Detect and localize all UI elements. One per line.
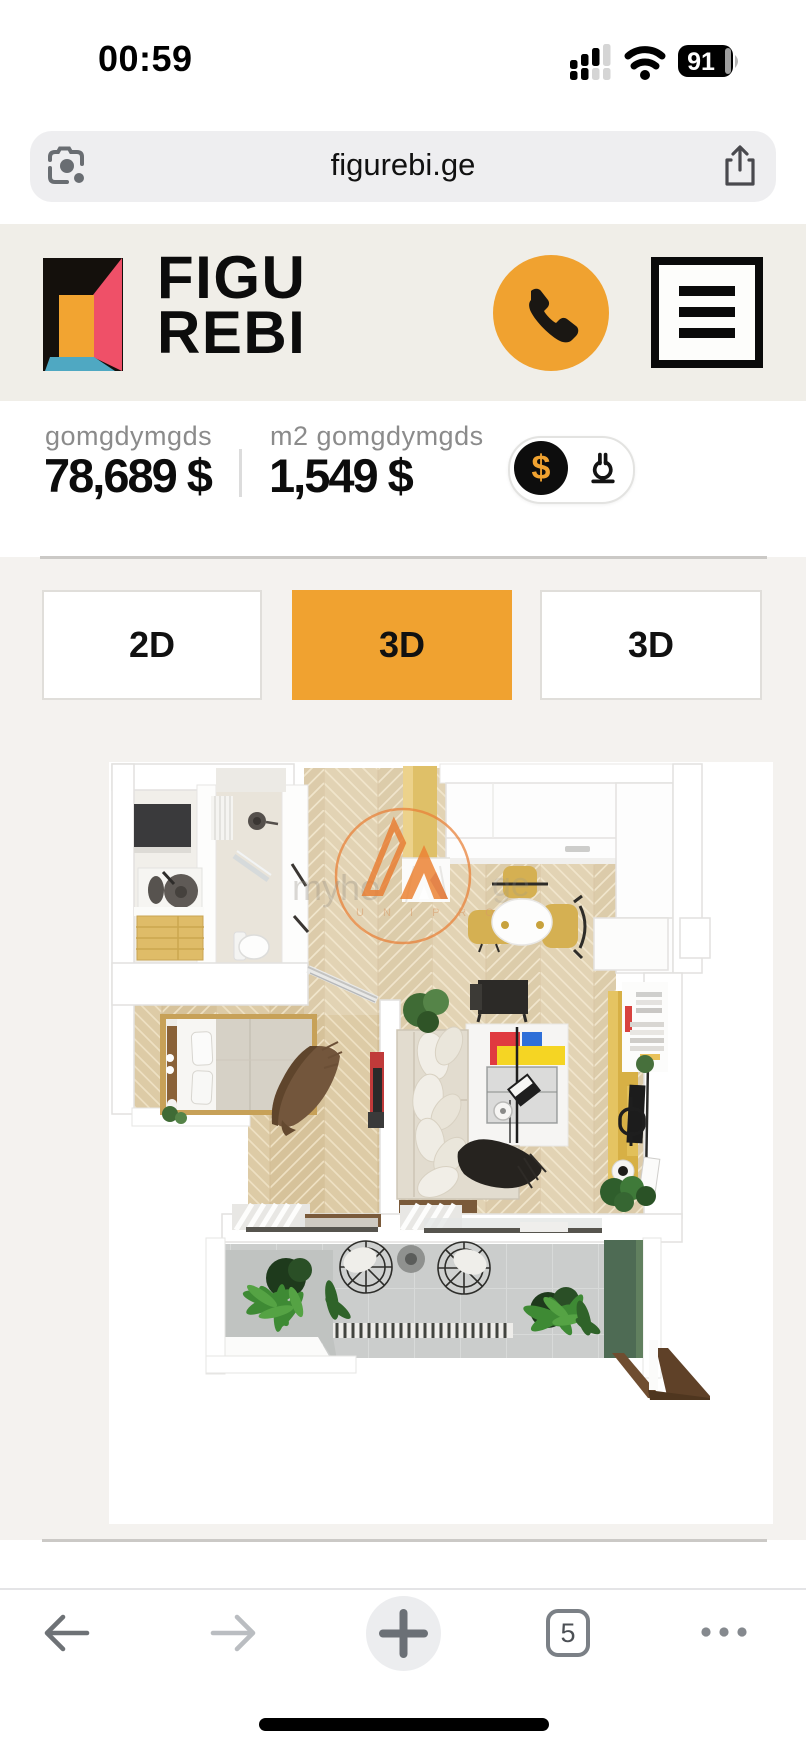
svg-text:U N I P R O: U N I P R O <box>356 907 502 919</box>
svg-text:91: 91 <box>687 48 715 76</box>
svg-text:ge: ge <box>492 866 530 904</box>
